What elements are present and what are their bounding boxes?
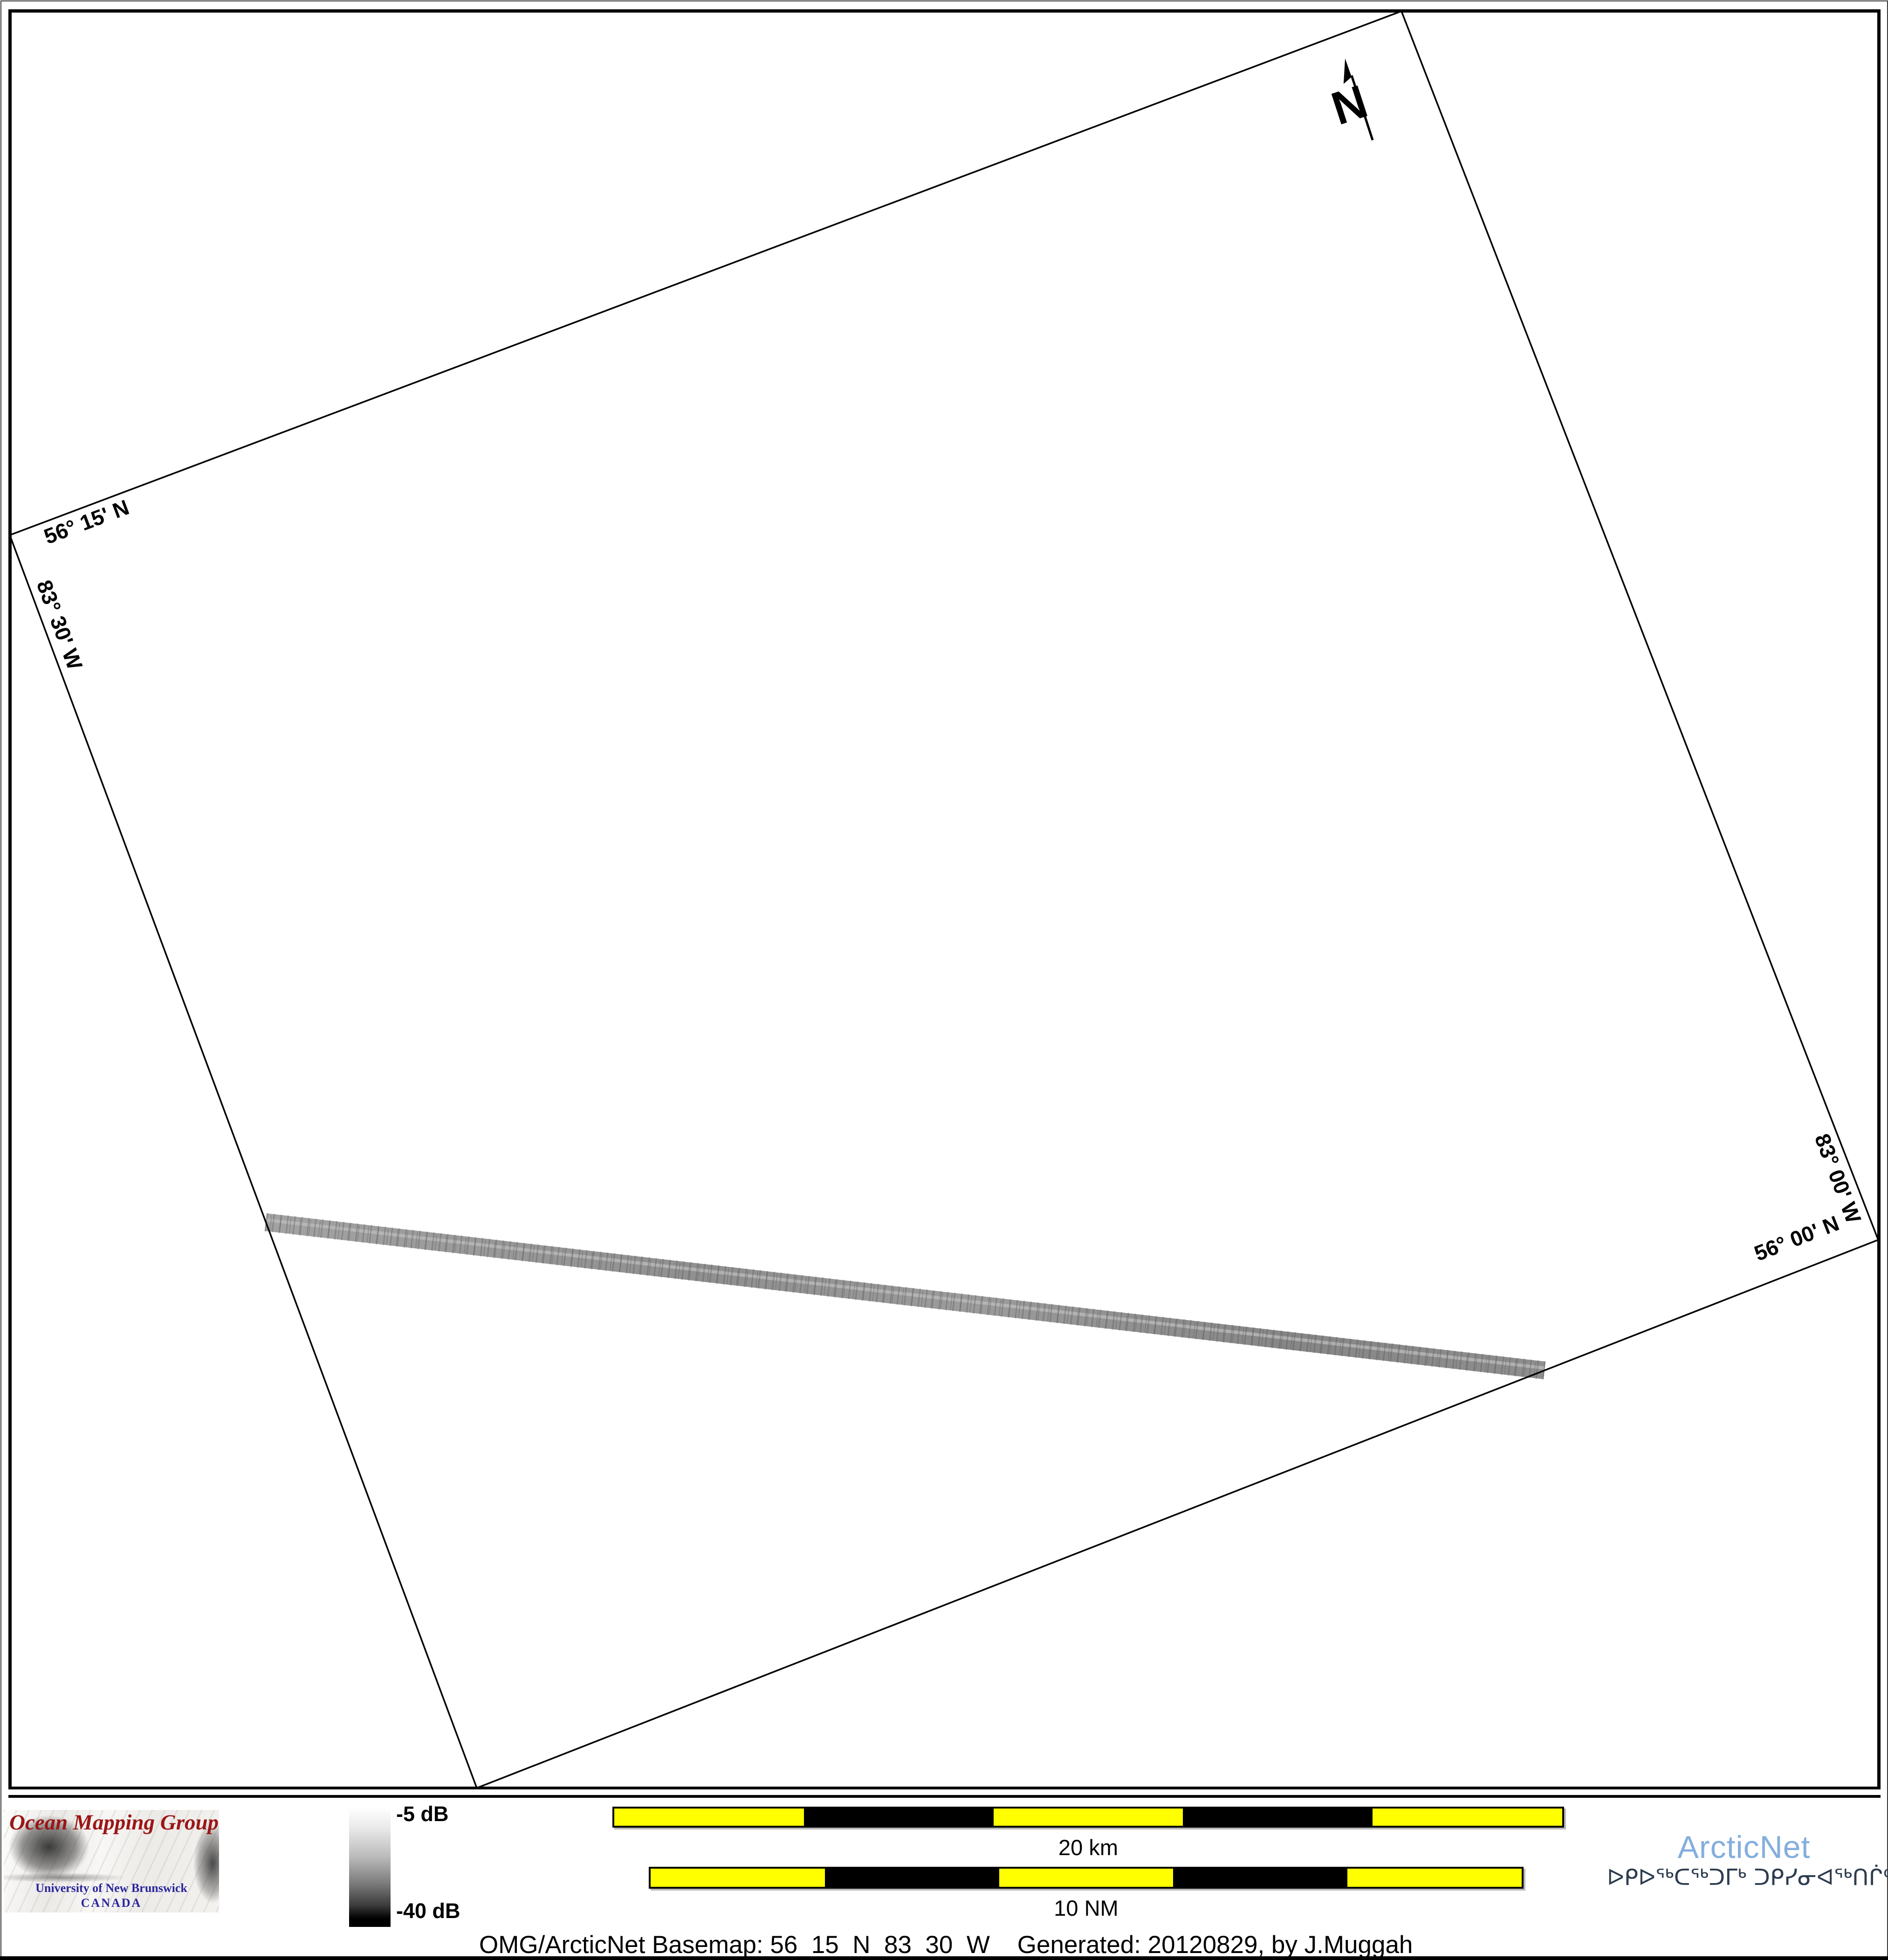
map-boundary	[10, 11, 1878, 1788]
scalebar-km-segment	[1373, 1809, 1562, 1826]
colorbar-min-label: -40 dB	[396, 1899, 460, 1923]
scalebar-km-label: 20 km	[612, 1835, 1564, 1860]
scalebar-km-segment	[994, 1809, 1183, 1826]
omg-logo-university: University of New Brunswick	[4, 1881, 219, 1895]
omg-logo-title: Ocean Mapping Group	[9, 1810, 219, 1835]
label-longitude-right: 83° 00' W	[1810, 1130, 1866, 1227]
backscatter-colorbar	[349, 1808, 391, 1927]
label-longitude-left: 83° 30' W	[32, 577, 88, 673]
scalebar-nm-segment	[999, 1869, 1174, 1887]
scalebar-nm-segment	[1173, 1869, 1347, 1887]
scalebar-km	[612, 1807, 1564, 1828]
scalebar-km-segment	[614, 1809, 804, 1826]
basemap-caption: OMG/ArcticNet Basemap: 56_15_N_83_30_W G…	[479, 1931, 1413, 1959]
label-latitude-top: 56° 15' N	[41, 495, 132, 549]
map-canvas: N 56° 15' N 83° 30' W 83° 00' W 56° 00' …	[0, 0, 1888, 1960]
north-arrow-label: N	[1325, 75, 1373, 135]
survey-swath	[266, 1220, 1545, 1371]
scalebar-km-segment	[804, 1809, 994, 1826]
arcticnet-logo-inuktitut: ᐅᑭᐅᖅᑕᖅᑐᒥᒃ ᑐᑭᓯᓂᐊᖅᑎᒌᑦ	[1607, 1864, 1887, 1891]
scalebar-nm-label: 10 NM	[649, 1895, 1524, 1921]
scalebar-nm-segment	[651, 1869, 825, 1887]
scalebar-nm	[649, 1867, 1524, 1889]
basemap-page: N 56° 15' N 83° 30' W 83° 00' W 56° 00' …	[0, 0, 1888, 1960]
scalebar-km-segment	[1183, 1809, 1373, 1826]
label-latitude-bottom: 56° 00' N	[1751, 1211, 1842, 1266]
arcticnet-logo-name: ArcticNet	[1604, 1829, 1884, 1865]
omg-logo: Ocean Mapping Group University of New Br…	[4, 1810, 219, 1912]
north-arrow: N	[1319, 56, 1378, 149]
scalebar-nm-segment	[1347, 1869, 1522, 1887]
omg-logo-country: CANADA	[4, 1896, 219, 1910]
colorbar-max-label: -5 dB	[396, 1802, 449, 1826]
scalebar-nm-segment	[825, 1869, 999, 1887]
